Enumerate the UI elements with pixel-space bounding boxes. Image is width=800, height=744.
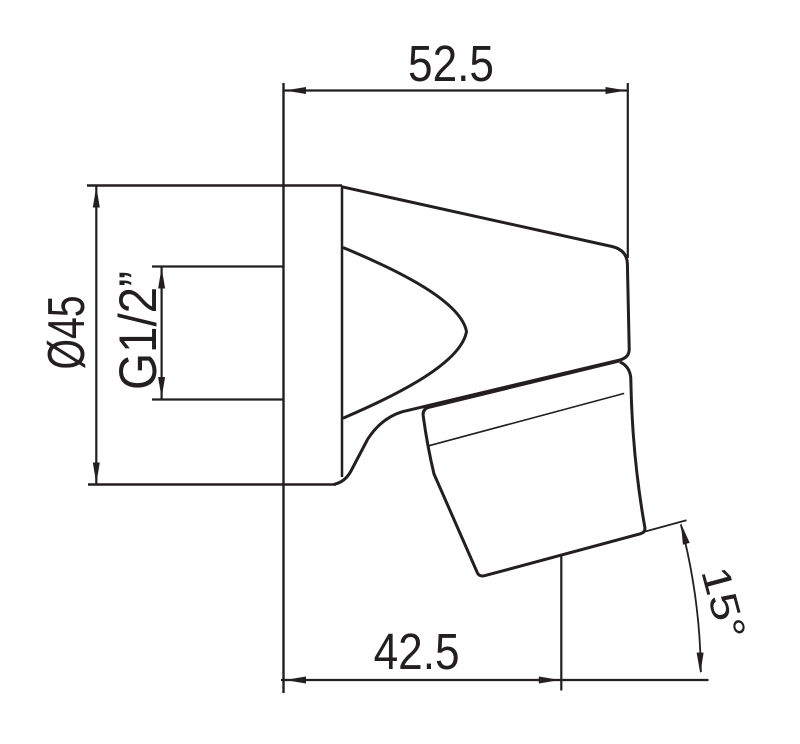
svg-text:52.5: 52.5 [408,35,494,92]
svg-text:G1/2”: G1/2” [109,271,168,390]
svg-text:42.5: 42.5 [374,623,460,680]
svg-text:Ø45: Ø45 [38,296,96,370]
